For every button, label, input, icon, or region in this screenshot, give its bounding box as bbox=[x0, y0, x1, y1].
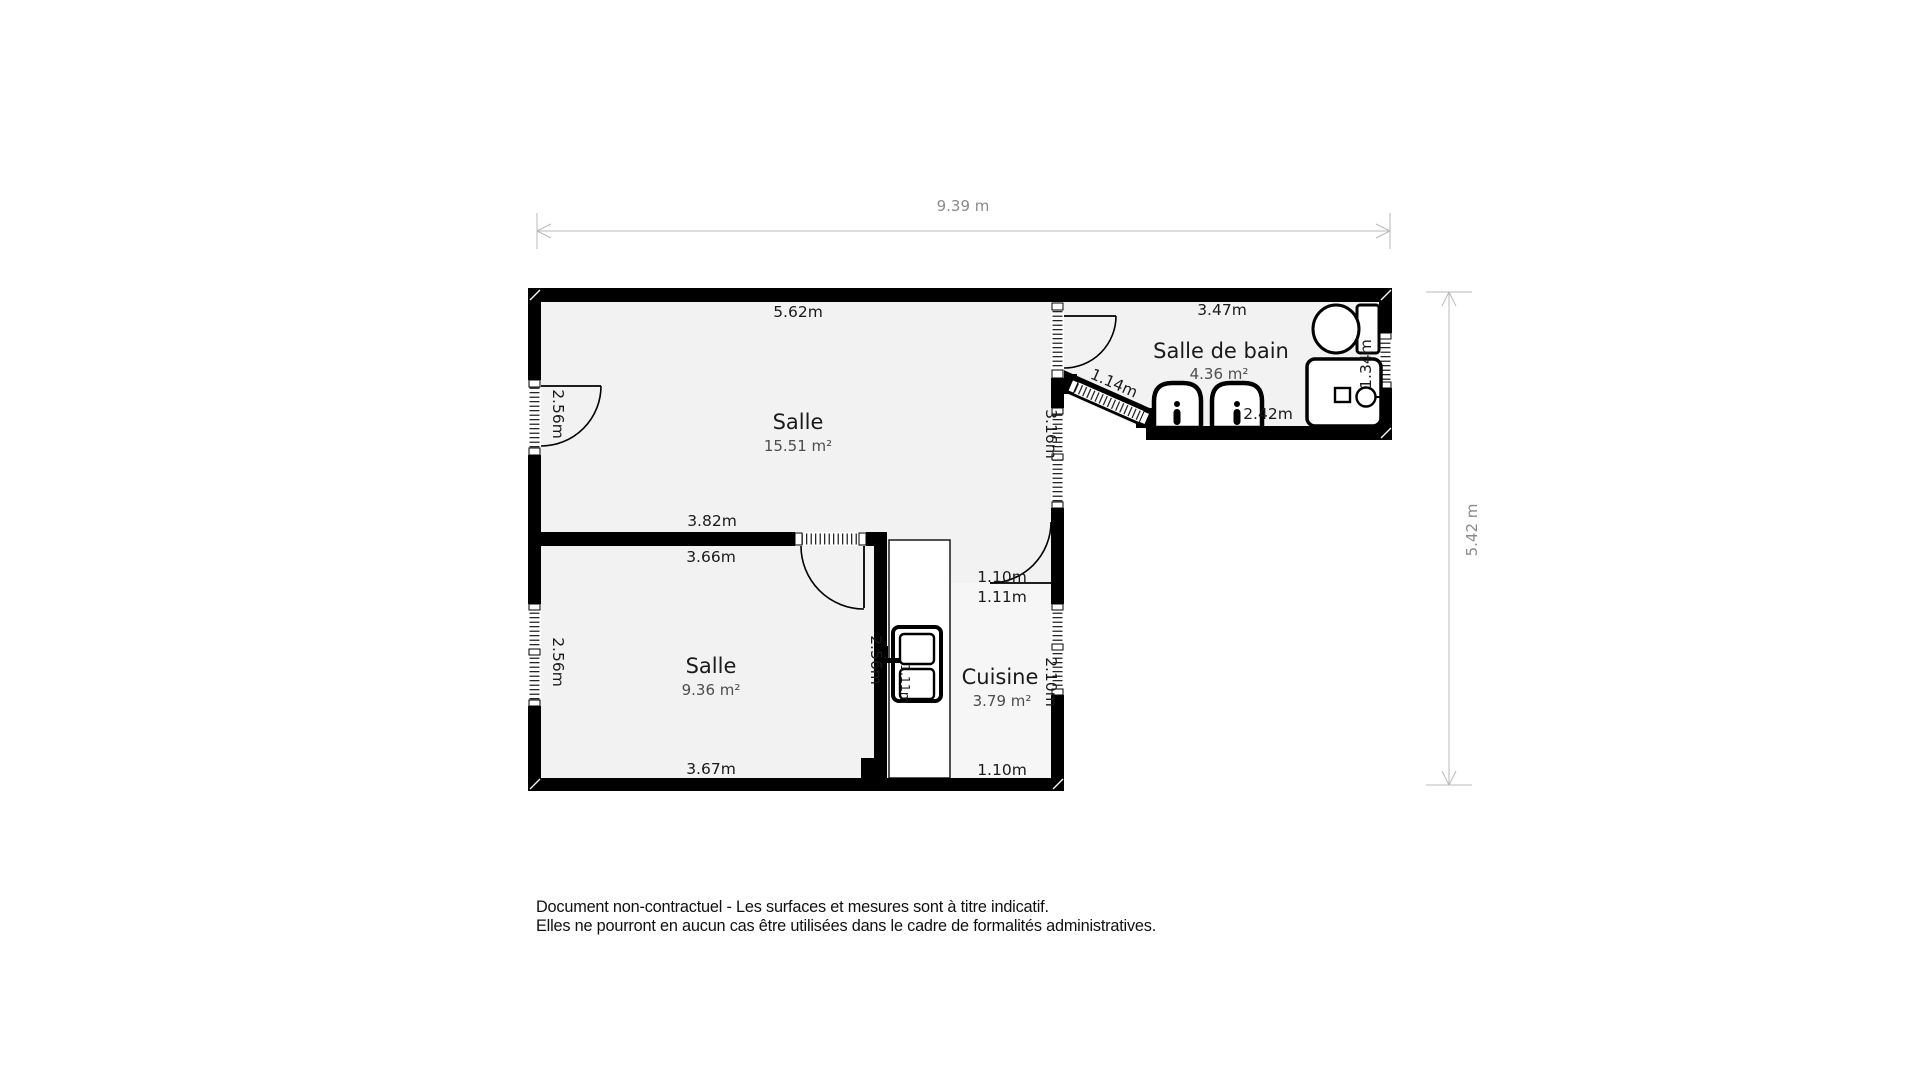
room-name-salle-de-bain: Salle de bain bbox=[1153, 339, 1289, 363]
measurement-label: 2.42m bbox=[1243, 405, 1293, 423]
measurement-label: 2.56m bbox=[549, 637, 567, 687]
door-glazing bbox=[530, 387, 540, 448]
measurement-label: 5.62m bbox=[773, 303, 823, 321]
room-area-salle-principale: 15.51 m² bbox=[764, 437, 832, 455]
door-glazing bbox=[1053, 310, 1063, 370]
wall-pillar bbox=[861, 758, 887, 778]
measurement-label: 3.66m bbox=[686, 548, 736, 566]
window-glazing bbox=[1053, 460, 1063, 502]
wall-kitchen-stub bbox=[1051, 583, 1064, 604]
measurement-label: 1.11m bbox=[898, 664, 913, 704]
door-glazing bbox=[802, 534, 859, 545]
measurement-label: 3.47m bbox=[1197, 301, 1247, 319]
dimension-height: 5.42 m bbox=[1426, 292, 1481, 785]
measurement-label: 2.56m bbox=[867, 635, 885, 685]
wall-bottom bbox=[528, 778, 1064, 791]
measurement-label: 2.56m bbox=[549, 389, 567, 439]
window-glazing bbox=[1053, 610, 1063, 644]
floor-plan-page: 9.39 m 5.42 m 5.62m Salle 15.51 m² 2.56m… bbox=[0, 0, 1920, 1080]
measurement-label: 2.10m bbox=[1042, 657, 1060, 707]
room-name-cuisine: Cuisine bbox=[962, 665, 1039, 689]
measurement-label: 1.10m bbox=[977, 568, 1027, 586]
measurement-label: 3.82m bbox=[687, 512, 737, 530]
window-glazing bbox=[530, 610, 540, 649]
measurement-label: 3.16m bbox=[1042, 409, 1060, 459]
measurement-label: 1.11m bbox=[977, 588, 1027, 606]
disclaimer-line-2: Elles ne pourront en aucun cas être util… bbox=[536, 917, 1156, 935]
measurement-label: 1.10m bbox=[977, 761, 1027, 779]
disclaimer-line-1: Document non-contractuel - Les surfaces … bbox=[536, 898, 1049, 916]
room-area-cuisine: 3.79 m² bbox=[973, 692, 1032, 710]
room-name-salle-secondaire: Salle bbox=[686, 654, 737, 678]
dimension-width: 9.39 m bbox=[537, 197, 1390, 249]
disclaimer: Document non-contractuel - Les surfaces … bbox=[536, 898, 1156, 935]
wall-left bbox=[528, 302, 541, 791]
room-area-salle-secondaire: 9.36 m² bbox=[682, 681, 741, 699]
floor-plan-drawing: 9.39 m 5.42 m 5.62m Salle 15.51 m² 2.56m… bbox=[0, 0, 1920, 1080]
dimension-width-label: 9.39 m bbox=[937, 197, 990, 215]
left-wall-window bbox=[528, 604, 541, 706]
measurement-label: 3.67m bbox=[686, 760, 736, 778]
room-area-salle-de-bain: 4.36 m² bbox=[1190, 365, 1249, 383]
dimension-height-label: 5.42 m bbox=[1463, 504, 1481, 557]
wall-top bbox=[528, 288, 1392, 302]
measurement-label: 1.34m bbox=[1357, 339, 1375, 389]
room-name-salle-principale: Salle bbox=[773, 410, 824, 434]
basin-icon bbox=[1154, 383, 1201, 428]
window-glazing bbox=[530, 655, 540, 700]
